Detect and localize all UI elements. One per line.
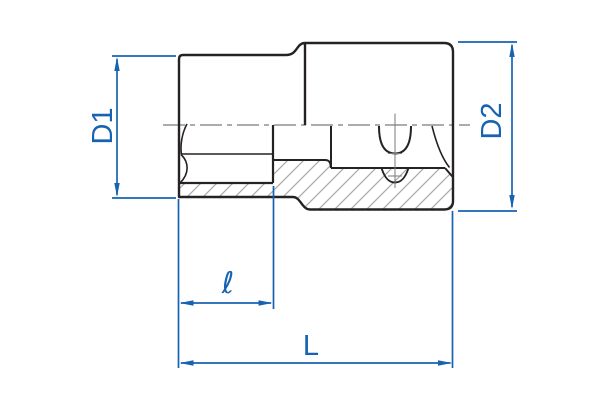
dimension-ell: ℓ (180, 186, 274, 309)
d2-arrow-down (509, 195, 514, 209)
dimension-length: L (180, 211, 453, 368)
d1-arrow-down (114, 183, 119, 197)
d1-label: D1 (87, 107, 119, 144)
dimension-d2: D2 (458, 42, 517, 211)
length-label: L (303, 330, 319, 362)
square-hole-flare-edge (432, 126, 450, 168)
technical-drawing-canvas: D1 D2 ℓ L (0, 0, 600, 420)
d2-label: D2 (476, 102, 508, 139)
length-arrow-left (180, 360, 194, 365)
d2-arrow-up (509, 43, 514, 57)
ell-arrow-right (259, 300, 273, 305)
d1-arrow-up (114, 57, 119, 71)
ell-label: ℓ (221, 266, 234, 301)
dimension-d1: D1 (87, 56, 176, 198)
length-arrow-right (438, 360, 452, 365)
ell-arrow-left (180, 300, 194, 305)
socket-section-drawing: D1 D2 ℓ L (0, 0, 600, 420)
